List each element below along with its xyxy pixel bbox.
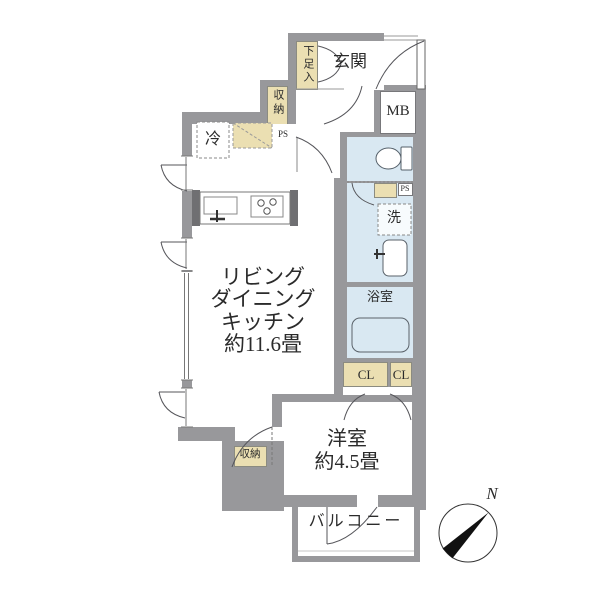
label-meter-box: MB — [386, 103, 409, 119]
label-balcony: バルコニー — [309, 513, 404, 530]
kitchen-sink-icon — [204, 197, 237, 214]
compass — [439, 504, 497, 562]
stove-icon — [251, 196, 283, 217]
label-ldk-line1: リビング — [211, 266, 316, 288]
toilet-icon — [347, 147, 413, 182]
vanity-sink-icon — [383, 240, 407, 276]
kitchen-counter — [192, 190, 298, 226]
label-refrigerator: 冷 — [205, 131, 221, 148]
label-western-room: 洋室 約4.5畳 — [315, 428, 380, 474]
hallway-doors — [296, 86, 362, 173]
label-ldk-line2: ダイニング — [211, 288, 316, 310]
label-entrance: 玄関 — [333, 53, 367, 71]
label-pipe-space-upper: PS — [278, 130, 288, 140]
label-western-room-size: 約4.5畳 — [315, 451, 380, 474]
label-compass-north: N — [486, 485, 497, 503]
western-room-door — [232, 427, 272, 467]
label-pipe-space-mid: PS — [401, 185, 410, 194]
label-washer: 洗 — [387, 211, 401, 226]
label-ldk-line3: キッチン — [211, 311, 316, 333]
label-ldk: リビング ダイニング キッチン 約11.6畳 — [211, 266, 316, 356]
laundry-space-box — [233, 123, 272, 148]
label-closet-right: CL — [393, 368, 410, 382]
label-shoe-cabinet: 下足入 — [301, 45, 313, 84]
label-storage-lower: 収納 — [240, 449, 261, 460]
floorplan: 玄関 下足入 MB 収納 PS 冷 洗 PS 浴室 CL CL リビング ダイニ… — [0, 0, 600, 600]
left-windows — [159, 156, 193, 427]
label-storage-upper: 収納 — [271, 89, 283, 117]
washroom-fixtures — [352, 183, 411, 276]
label-closet-left: CL — [358, 368, 375, 382]
label-ldk-size: 約11.6畳 — [211, 333, 316, 355]
label-western-room-name: 洋室 — [315, 428, 380, 451]
closet-doors — [344, 394, 411, 420]
bathtub-icon — [352, 318, 409, 352]
label-bathroom: 浴室 — [367, 290, 393, 304]
